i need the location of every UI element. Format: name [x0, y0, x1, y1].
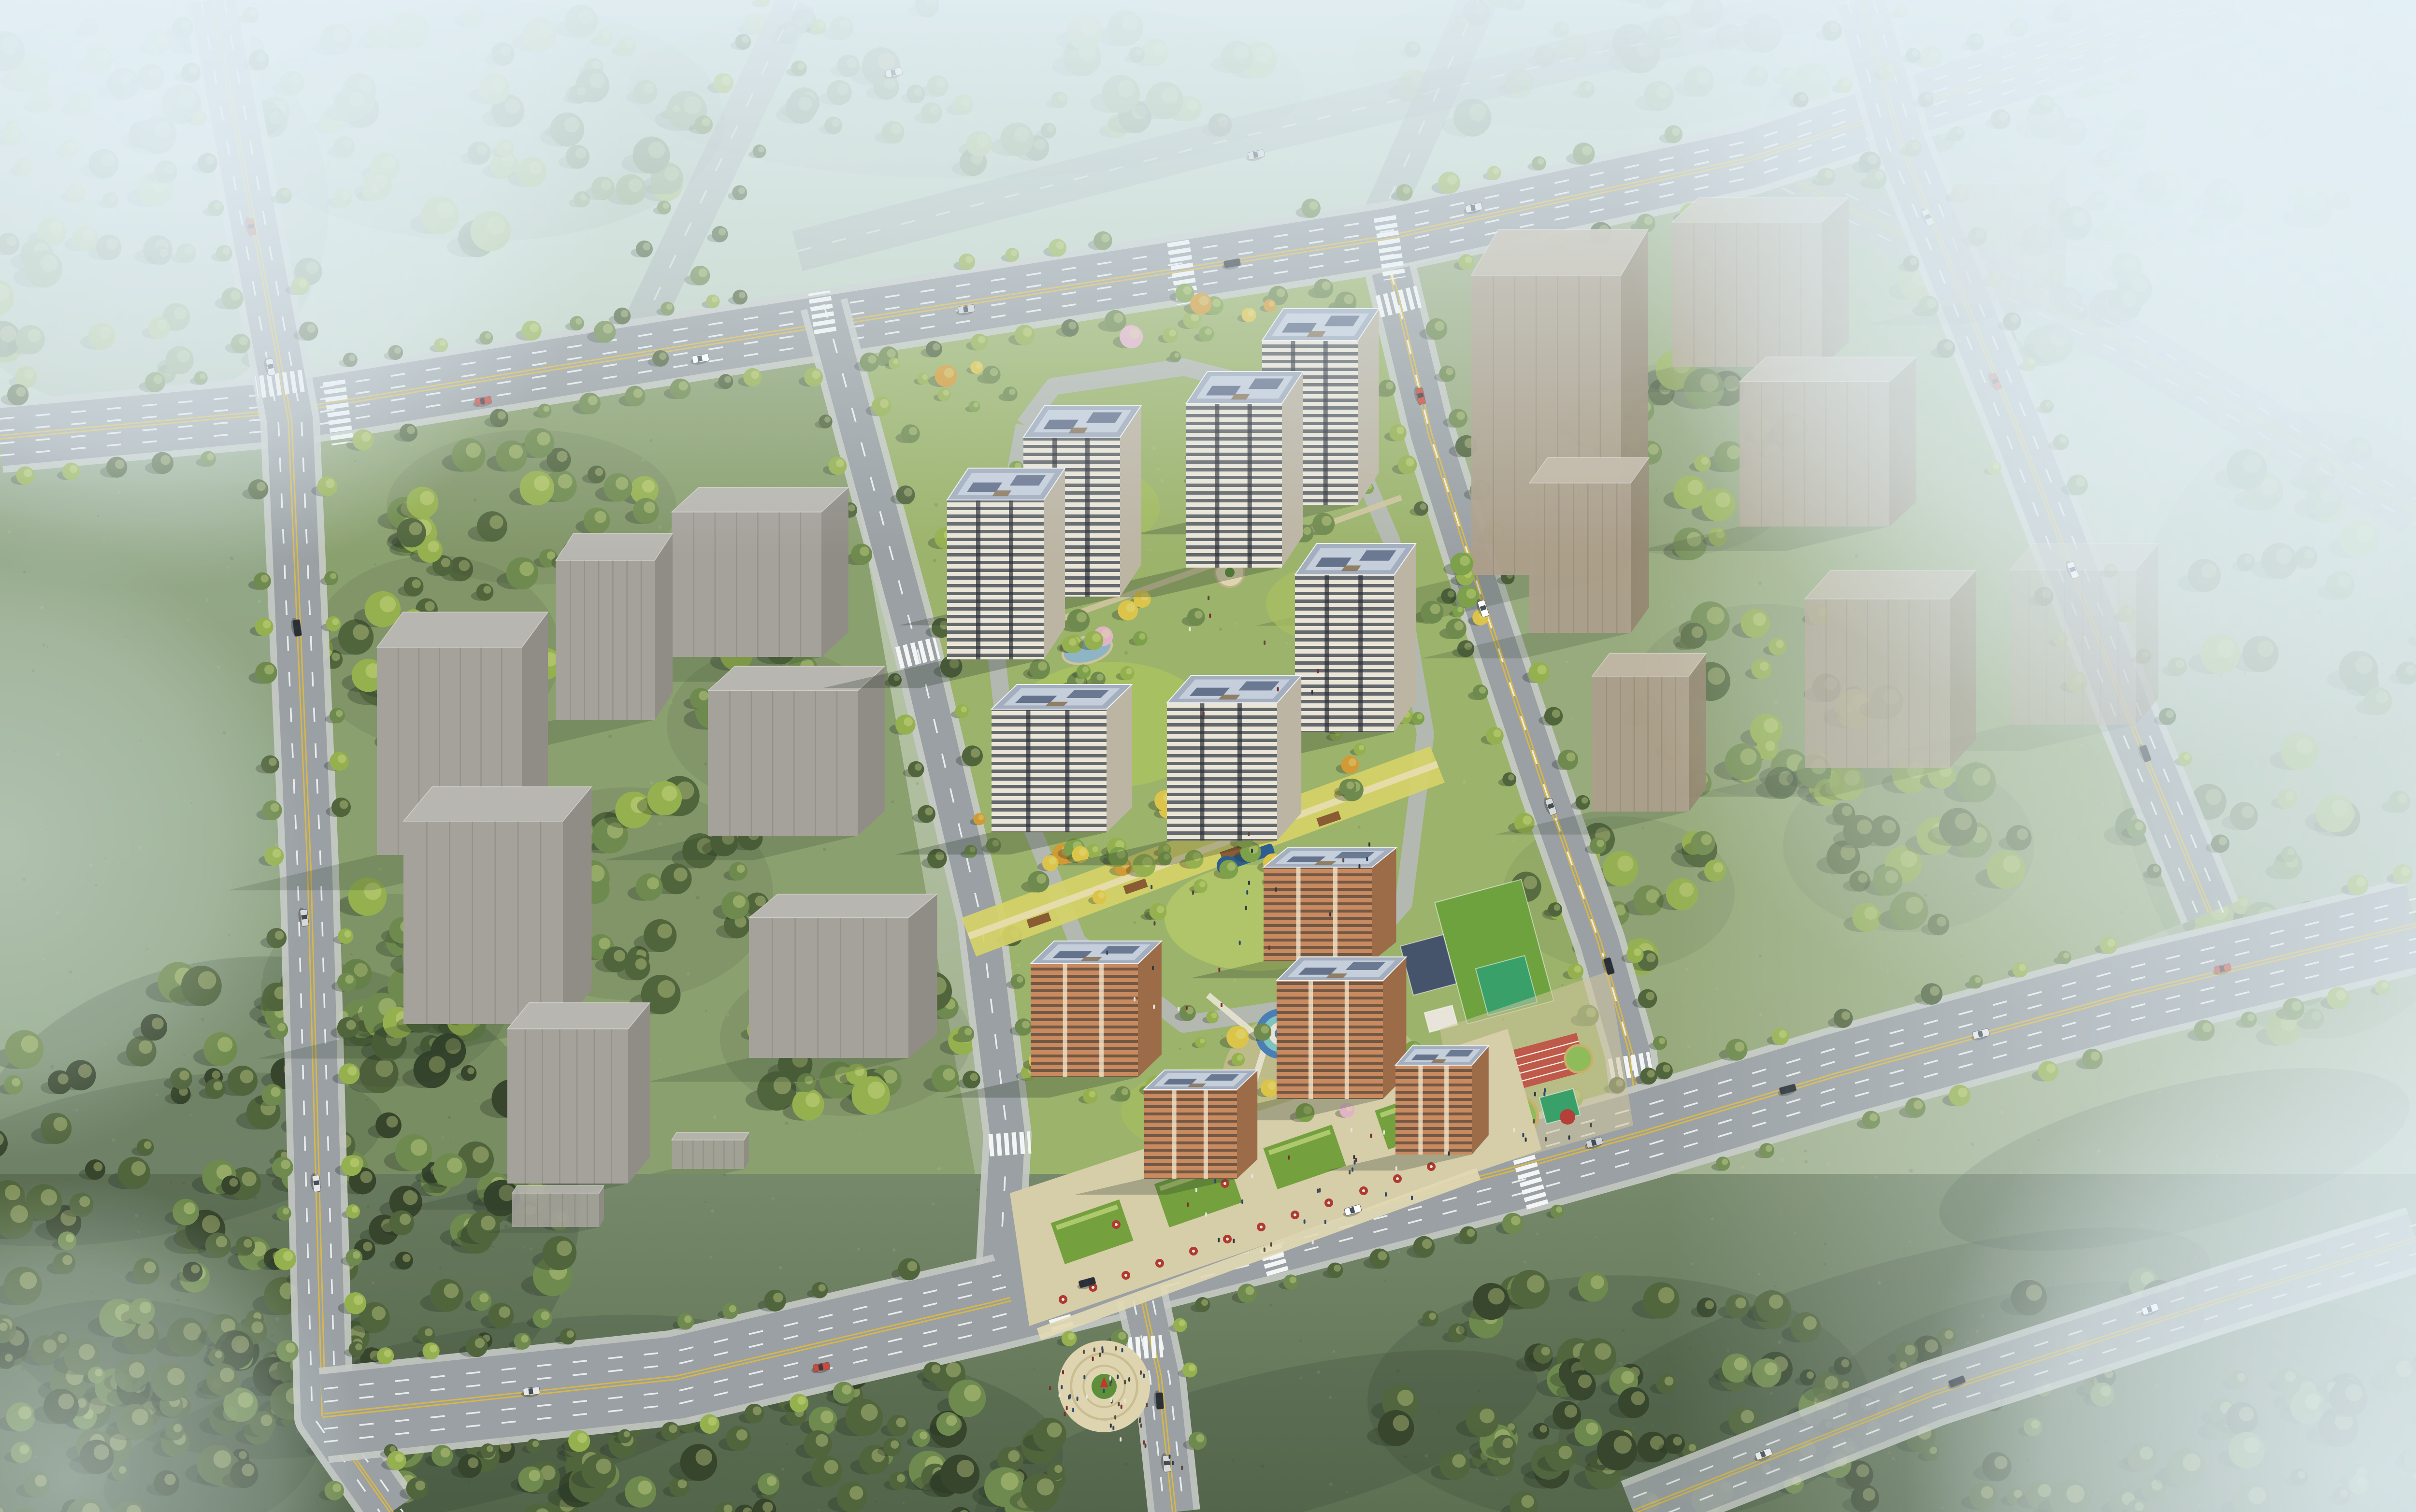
- tower-facade: [1264, 867, 1372, 961]
- pedestrian: [1114, 1415, 1116, 1420]
- pedestrian: [1221, 1003, 1222, 1007]
- pedestrian: [1110, 1424, 1112, 1428]
- pedestrian: [1059, 1393, 1061, 1398]
- pedestrian: [1351, 1128, 1352, 1132]
- pedestrian: [1277, 687, 1279, 691]
- pedestrian: [1368, 842, 1370, 847]
- pedestrian: [1110, 1398, 1112, 1402]
- tower-facade: [1277, 981, 1383, 1099]
- crosswalk: [987, 1131, 1032, 1156]
- pedestrian: [1246, 890, 1248, 895]
- pedestrian: [1140, 1424, 1142, 1428]
- pedestrian: [1312, 1240, 1314, 1244]
- pedestrian: [1568, 1135, 1570, 1140]
- pedestrian: [1128, 1377, 1130, 1382]
- play-mound: [1560, 1109, 1575, 1125]
- pedestrian: [1061, 1385, 1063, 1389]
- pedestrian: [1324, 1220, 1326, 1224]
- pedestrian: [1077, 1397, 1079, 1401]
- pedestrian: [1383, 1130, 1385, 1135]
- pedestrian: [1275, 887, 1277, 892]
- pedestrian: [1153, 1004, 1155, 1009]
- aerial-render-image: [0, 0, 2416, 1512]
- pedestrian: [1239, 941, 1241, 945]
- pedestrian: [1288, 1155, 1290, 1160]
- pedestrian: [1208, 596, 1209, 600]
- pedestrian: [1342, 858, 1344, 862]
- pedestrian: [1214, 1179, 1216, 1184]
- pedestrian: [1192, 890, 1194, 895]
- pedestrian: [1152, 966, 1154, 970]
- pedestrian: [1109, 1382, 1111, 1386]
- pedestrian: [1354, 1160, 1356, 1165]
- pedestrian: [1150, 885, 1152, 889]
- pedestrian: [1121, 1405, 1122, 1409]
- pedestrian: [1248, 881, 1250, 885]
- scene-root: [0, 0, 2416, 1512]
- pedestrian: [1264, 641, 1266, 645]
- pedestrian: [1092, 1356, 1094, 1361]
- pedestrian: [1122, 1348, 1123, 1353]
- pedestrian: [1139, 1417, 1141, 1422]
- pedestrian: [1352, 1168, 1353, 1172]
- lawn-circle: [1565, 1045, 1592, 1072]
- pedestrian: [1069, 1394, 1071, 1398]
- pedestrian: [1143, 1374, 1145, 1378]
- pedestrian: [1117, 1375, 1119, 1379]
- pedestrian: [1093, 1348, 1095, 1352]
- pedestrian: [1385, 1192, 1387, 1197]
- pedestrian: [1366, 857, 1368, 861]
- pedestrian: [1203, 712, 1205, 716]
- pedestrian: [1317, 1189, 1319, 1193]
- pedestrian: [1264, 1248, 1266, 1252]
- pedestrian: [1099, 1353, 1101, 1357]
- pedestrian: [1120, 1437, 1122, 1441]
- pedestrian: [1101, 1346, 1103, 1351]
- pedestrian: [1140, 1370, 1142, 1375]
- pedestrian: [1370, 1134, 1372, 1138]
- pedestrian: [1189, 627, 1191, 631]
- tower-facade: [1144, 1089, 1237, 1179]
- tower-facade: [992, 709, 1107, 832]
- pedestrian: [1143, 1441, 1145, 1445]
- pedestrian: [1072, 1408, 1074, 1412]
- pedestrian: [1178, 1007, 1179, 1011]
- pedestrian: [1218, 1238, 1220, 1242]
- pedestrian: [1146, 1403, 1148, 1407]
- pedestrian: [1268, 945, 1270, 950]
- pedestrian: [1186, 1006, 1188, 1010]
- pedestrian: [1358, 864, 1360, 869]
- pedestrian: [1134, 997, 1136, 1001]
- pedestrian: [1353, 1155, 1355, 1159]
- pedestrian: [1115, 1346, 1117, 1351]
- pedestrian: [1049, 1386, 1051, 1390]
- pedestrian: [1218, 968, 1220, 972]
- pedestrian: [1062, 1370, 1064, 1374]
- pedestrian: [1545, 1137, 1547, 1141]
- tower-facade: [1167, 703, 1277, 841]
- pedestrian: [1124, 1399, 1126, 1403]
- pedestrian: [1251, 1174, 1253, 1178]
- aerial-render-canvas: [0, 0, 2416, 1512]
- pedestrian: [1522, 1133, 1524, 1137]
- pedestrian: [1083, 1350, 1085, 1354]
- pedestrian: [1106, 950, 1108, 955]
- pedestrian: [1181, 1466, 1183, 1470]
- tower-facade: [1395, 1065, 1472, 1155]
- pedestrian: [1543, 1092, 1545, 1096]
- pedestrian: [1233, 1239, 1235, 1243]
- pedestrian: [1241, 1199, 1243, 1204]
- tower-facade: [1031, 964, 1138, 1077]
- pedestrian: [1248, 832, 1250, 836]
- pedestrian: [1172, 1461, 1174, 1465]
- pedestrian: [1525, 1138, 1527, 1142]
- pedestrian: [1544, 1088, 1546, 1093]
- pedestrian: [1109, 1376, 1111, 1381]
- pedestrian: [1169, 1455, 1171, 1459]
- pedestrian: [1195, 1188, 1197, 1192]
- tower-facade: [1295, 575, 1394, 732]
- pedestrian: [1251, 849, 1253, 853]
- pedestrian: [1066, 1406, 1068, 1410]
- pedestrian: [1513, 1128, 1515, 1132]
- pedestrian: [1064, 1412, 1065, 1416]
- pedestrian: [1270, 1242, 1272, 1247]
- pedestrian: [1304, 1219, 1306, 1224]
- pedestrian: [1187, 1202, 1189, 1207]
- pedestrian: [1448, 1151, 1450, 1155]
- pedestrian: [1118, 1402, 1120, 1406]
- pedestrian: [1145, 1443, 1147, 1448]
- pedestrian: [1395, 1166, 1397, 1170]
- pedestrian: [1153, 921, 1155, 926]
- pedestrian: [1209, 613, 1211, 618]
- pedestrian: [1086, 1394, 1088, 1398]
- pedestrian: [1329, 912, 1331, 916]
- pedestrian: [1411, 1196, 1413, 1200]
- pedestrian: [1245, 906, 1247, 910]
- pedestrian: [1083, 1375, 1085, 1379]
- pedestrian: [1317, 669, 1319, 673]
- pedestrian: [1349, 1170, 1351, 1174]
- pedestrian: [1103, 1389, 1105, 1393]
- pedestrian: [1533, 1119, 1535, 1124]
- pedestrian: [1311, 690, 1313, 695]
- pedestrian: [1124, 1380, 1126, 1384]
- pedestrian: [1319, 1188, 1321, 1193]
- pedestrian: [1590, 1123, 1592, 1127]
- pedestrian: [1205, 1212, 1207, 1217]
- pedestrian: [1534, 1092, 1536, 1097]
- pedestrian: [1112, 1426, 1114, 1430]
